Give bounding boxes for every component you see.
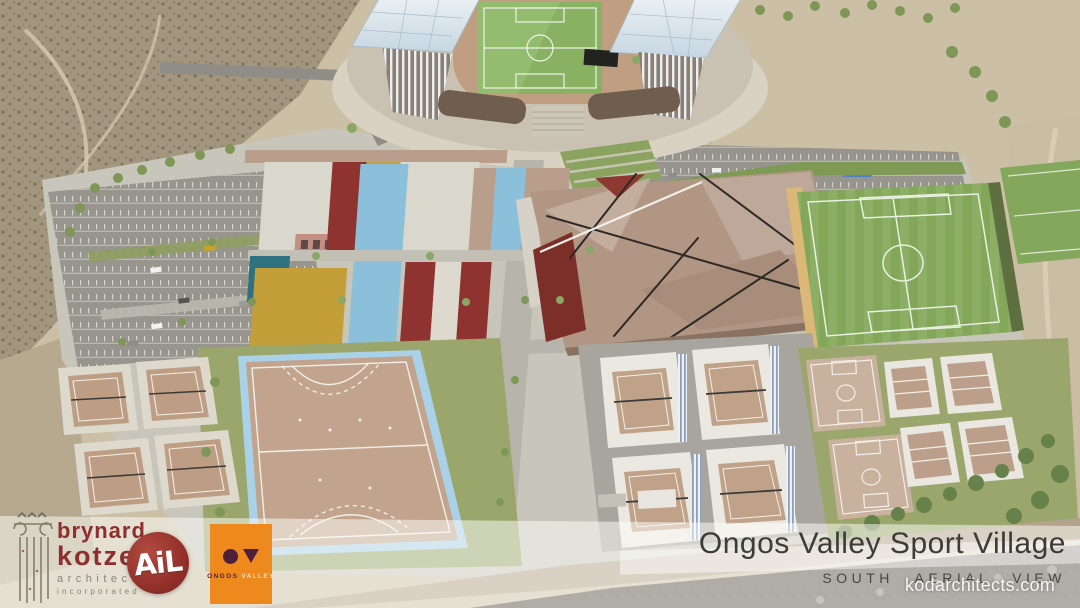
ail-logo-text: AiL: [132, 544, 183, 583]
ongos-name-part1: ONGOS: [207, 573, 238, 580]
ongos-circle-icon: [223, 549, 238, 564]
ongos-name-part2: VALLEY: [241, 573, 275, 580]
architect-name-line1: brynard: [57, 520, 149, 542]
soccer-field-east: [786, 182, 1024, 348]
basketball-court-2: [828, 434, 914, 520]
basketball-court-1: [806, 355, 886, 432]
architect-sub-line2: incorporated: [57, 588, 149, 596]
page-title: Ongos Valley Sport Village: [699, 527, 1066, 561]
ongos-triangle-icon: [243, 549, 259, 563]
ongos-valley-logo: ONGOSVALLEY: [210, 524, 272, 604]
aerial-render: [0, 0, 1080, 608]
ongos-valley-name: ONGOSVALLEY: [207, 573, 275, 580]
column-logo-icon: [10, 511, 56, 605]
rendering-slide: brynard kotze architects incorporated Ai…: [0, 0, 1080, 608]
courts-southeast: [798, 338, 1078, 548]
watermark: kodarchitects.com: [905, 575, 1055, 596]
ongos-valley-glyphs: [223, 549, 259, 564]
ail-logo: AiL: [127, 532, 189, 594]
